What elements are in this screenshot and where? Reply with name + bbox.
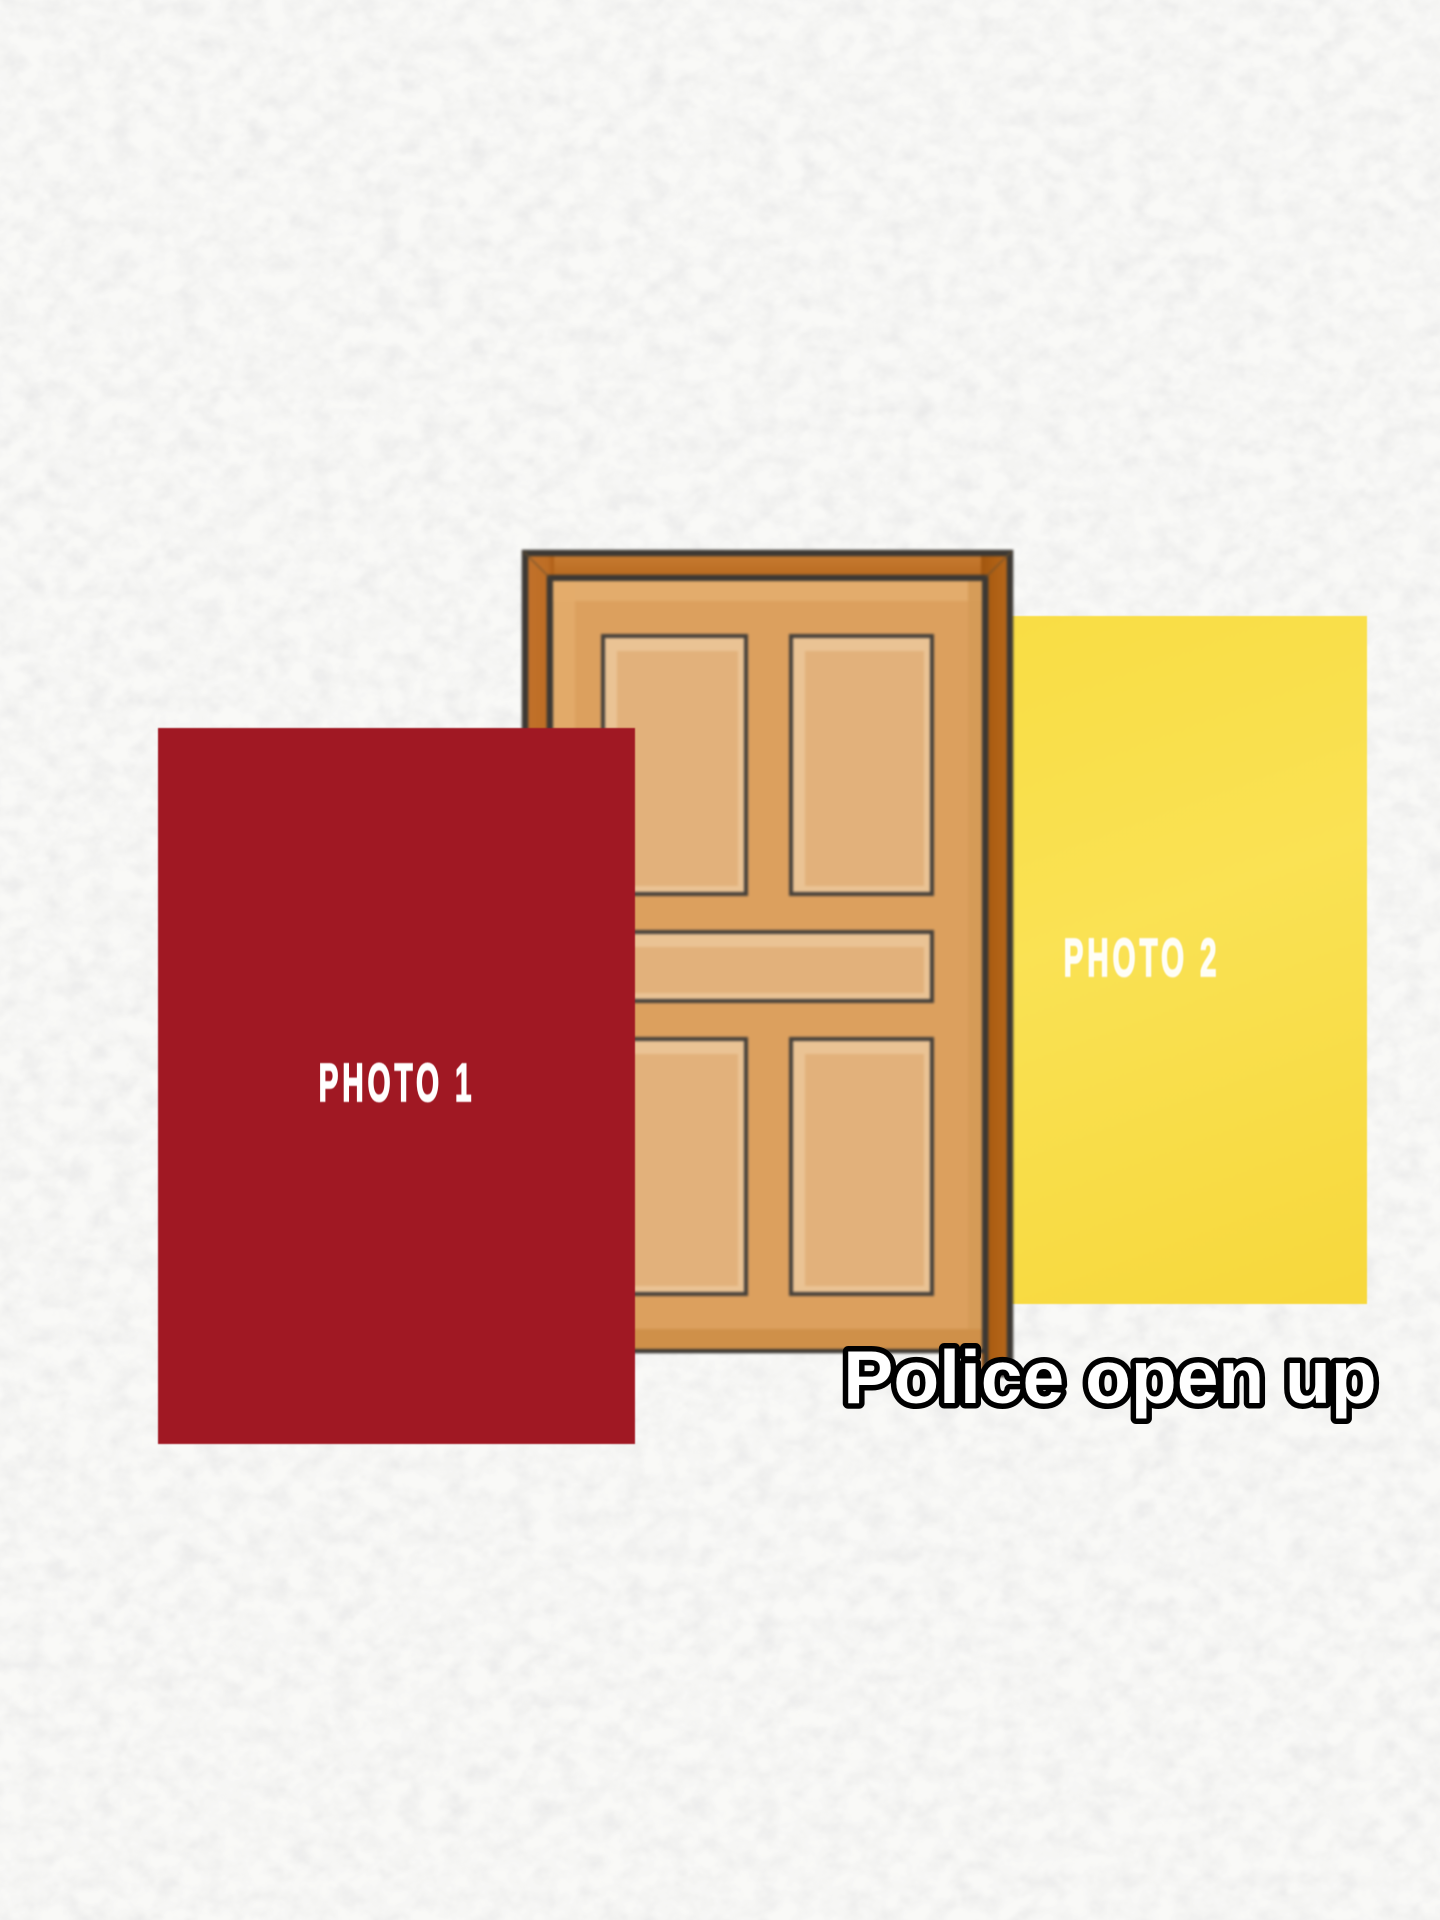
svg-text:Police open up: Police open up [843,1335,1376,1419]
